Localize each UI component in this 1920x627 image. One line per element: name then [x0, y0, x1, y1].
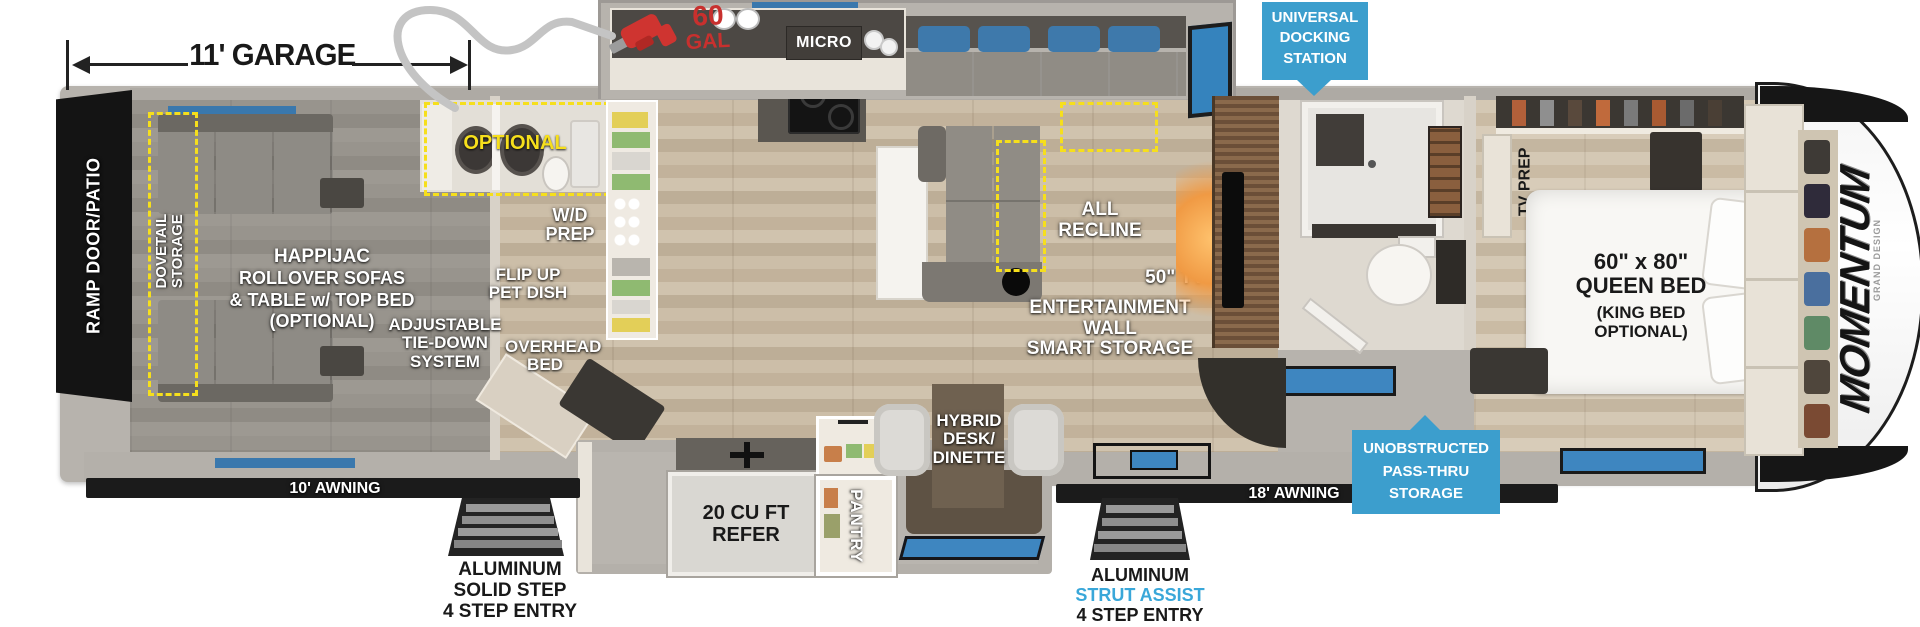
garage-bottom-window [215, 458, 355, 468]
steps-left-tread-2 [462, 516, 554, 524]
docking-badge-line1: UNIVERSAL [1262, 8, 1368, 28]
bath-bottom-window [1272, 366, 1396, 396]
steps-right-line2: STRUT ASSIST [1072, 586, 1208, 606]
passthru-badge-line3: STORAGE [1352, 483, 1500, 506]
shelf-item-6 [612, 280, 650, 296]
steps-right-line3: 4 STEP ENTRY [1072, 606, 1208, 626]
island-burner-cross-v [744, 442, 750, 468]
bath-cabinet [1436, 240, 1466, 304]
shelf-item-8 [612, 318, 650, 332]
clothes-item-5 [1804, 316, 1830, 350]
happijac-line3: & TABLE w/ TOP BED [222, 290, 422, 311]
hybrid-line3: DINETTE [926, 449, 1012, 467]
tie-down-line1: ADJUSTABLE [385, 316, 505, 334]
clothes-item-1 [1804, 140, 1830, 174]
fuel-hose [360, 0, 690, 115]
clothes-item-3 [1804, 228, 1830, 262]
sofa-side-table [1002, 268, 1030, 296]
refer-label: 20 CU FT REFER [703, 502, 790, 546]
cooktop-burner-2 [828, 104, 854, 130]
dovetail-line1: DOVETAIL [154, 214, 170, 289]
brand-maker-text: GRAND DESIGN [1872, 219, 1882, 301]
steps-right-line1: ALUMINUM [1072, 566, 1208, 586]
optional-label: OPTIONAL [450, 132, 580, 155]
pantry-box-1 [846, 444, 862, 458]
refer-line2: REFER [703, 524, 790, 546]
sofa-pillow-1 [918, 26, 970, 52]
dim-line-left [88, 63, 188, 66]
clothes-item-4 [1804, 272, 1830, 306]
happijac-line1: HAPPIJAC [222, 246, 422, 268]
ramp-door-label-box: RAMP DOOR/PATIO [56, 96, 132, 396]
bedroom-closet [1496, 96, 1744, 130]
shelf-item-7 [612, 300, 650, 314]
closet-item-4 [1596, 100, 1610, 126]
bed-option-line1: (KING BED [1566, 304, 1716, 323]
sofa-pillow-4 [1108, 26, 1160, 52]
steps-left-line3: 4 STEP ENTRY [440, 602, 580, 623]
bed-size-line2: QUEEN BED [1556, 274, 1726, 298]
docking-badge-line2: DOCKING [1262, 28, 1368, 48]
kitchen-sink-bowl-2 [736, 8, 760, 30]
clothes-item-6 [1804, 360, 1830, 394]
garage-speaker-bottom [320, 346, 364, 376]
closet-item-1 [1512, 100, 1526, 126]
steps-left-tread-4 [454, 540, 562, 548]
pantry-item-1 [824, 488, 838, 508]
shelf-item-2 [612, 132, 650, 148]
bed-option-line2: OPTIONAL) [1566, 323, 1716, 342]
wd-prep-line1: W/D [538, 206, 602, 225]
dovetail-label-box: DOVETAIL STORAGE [146, 118, 194, 384]
pantry-pot [824, 446, 842, 462]
flip-up-line1: FLIP UP [486, 266, 570, 284]
all-recline-label: ALL RECLINE [1040, 200, 1160, 241]
clothes-item-2 [1804, 184, 1830, 218]
fireplace-glow [1176, 146, 1214, 332]
overhead-bed-line2: BED [505, 356, 585, 374]
entry-door-mat [1130, 450, 1178, 470]
shelf-item-4 [612, 174, 650, 190]
floorplan-canvas: MOMENTUM GRAND DESIGN RAMP DOOR/PATIO DO… [0, 0, 1920, 627]
brand-maker: GRAND DESIGN [1866, 200, 1888, 320]
passthru-storage-badge: UNOBSTRUCTED PASS-THRU STORAGE [1352, 430, 1500, 514]
nightstand [1650, 132, 1702, 192]
dim-tick-left [66, 40, 69, 90]
wd-prep-line2: PREP [538, 225, 602, 244]
tie-down-label: ADJUSTABLE TIE-DOWN SYSTEM [385, 316, 505, 371]
sofa-arm [918, 126, 946, 182]
pantry-item-2 [824, 514, 840, 538]
shelf-item-5 [612, 258, 650, 276]
passthru-badge-line1: UNOBSTRUCTED [1352, 438, 1500, 461]
overhead-bed-line1: OVERHEAD [505, 338, 585, 356]
refer-line1: 20 CU FT [703, 502, 790, 524]
overhead-bed-label: OVERHEAD BED [505, 338, 585, 375]
dovetail-label: DOVETAIL STORAGE [154, 214, 186, 289]
garage-dim-label: 11' GARAGE [189, 38, 351, 72]
microwave: MICRO [786, 26, 862, 60]
steps-right-tread-2 [1102, 518, 1178, 526]
toilet-bowl [1366, 244, 1432, 306]
passthru-badge-line2: PASS-THRU [1352, 461, 1500, 484]
wall-tv [1222, 172, 1244, 308]
bed-bench [1470, 348, 1548, 394]
docking-badge-line3: STATION [1262, 49, 1368, 69]
dish-plate-2 [880, 38, 898, 56]
slide-floor-mat [899, 536, 1045, 560]
fuel-unit-label: GAL [684, 29, 731, 55]
desk-chair-right [1008, 404, 1064, 476]
recline-box-side [996, 140, 1046, 272]
hybrid-line1: HYBRID [926, 412, 1012, 430]
tie-down-line3: SYSTEM [385, 353, 505, 371]
closet-item-8 [1708, 100, 1722, 126]
dovetail-line2: STORAGE [170, 214, 186, 289]
closet-item-5 [1624, 100, 1638, 126]
steps-left-tread-1 [466, 504, 550, 512]
flip-up-line2: PET DISH [486, 284, 570, 302]
steps-right-tread-3 [1098, 531, 1182, 539]
sofa-pillow-3 [1048, 26, 1100, 52]
hybrid-desk-label: HYBRID DESK/ DINETTE [926, 412, 1012, 467]
bedroom-bottom-window [1560, 448, 1706, 474]
closet-item-6 [1652, 100, 1666, 126]
closet-item-7 [1680, 100, 1694, 126]
sofa-seats-top [906, 52, 1186, 96]
refrigerator: 20 CU FT REFER [668, 472, 824, 576]
awning-left-label: 10' AWNING [270, 480, 400, 497]
wardrobe [1744, 104, 1804, 456]
bath-wall-right [1464, 96, 1476, 350]
steps-left-tread-3 [458, 528, 558, 536]
shower-drain [1368, 160, 1376, 168]
fuel-hose-path [398, 10, 612, 108]
clothes-item-7 [1804, 404, 1830, 438]
closet-item-3 [1568, 100, 1582, 126]
bath-bench [1428, 126, 1462, 218]
steps-right-tread-1 [1106, 505, 1174, 513]
passthru-badge-pointer [1409, 415, 1441, 431]
recline-box-top [1060, 102, 1158, 152]
docking-badge-pointer [1297, 80, 1331, 96]
bed-option-label: (KING BED OPTIONAL) [1566, 304, 1716, 341]
pantry-handle [838, 420, 868, 424]
wd-prep-label: W/D PREP [538, 206, 602, 245]
ent-wall-line2: SMART STORAGE [1012, 339, 1208, 360]
garage-speaker-top [320, 178, 364, 208]
bed-size-label: 60" x 80" QUEEN BED [1556, 250, 1726, 298]
awning-right-label: 18' AWNING [1238, 485, 1350, 502]
flip-up-label: FLIP UP PET DISH [486, 266, 570, 303]
steps-right-tread-4 [1094, 544, 1186, 552]
desk-chair-left [874, 404, 930, 476]
shelf-item-3 [612, 152, 650, 170]
microwave-label: MICRO [796, 34, 852, 52]
steps-left-line2: SOLID STEP [440, 581, 580, 602]
docking-station-badge: UNIVERSAL DOCKING STATION [1262, 2, 1368, 80]
shelf-plates [610, 196, 650, 254]
steps-left-label: ALUMINUM SOLID STEP 4 STEP ENTRY [440, 560, 580, 623]
shower-seat [1316, 114, 1364, 166]
bottom-slide-left-wall [578, 442, 592, 572]
fuel-nozzle-icon [605, 8, 678, 70]
ramp-door-label: RAMP DOOR/PATIO [84, 158, 103, 335]
steps-left-line1: ALUMINUM [440, 560, 580, 581]
bed-size-line1: 60" x 80" [1556, 250, 1726, 274]
hybrid-line2: DESK/ [926, 430, 1012, 448]
happijac-line2: ROLLOVER SOFAS [222, 268, 422, 289]
slide-window-sliver [752, 2, 858, 8]
tie-down-line2: TIE-DOWN [385, 334, 505, 352]
steps-right-label: ALUMINUM STRUT ASSIST 4 STEP ENTRY [1072, 566, 1208, 625]
sofa-pillow-2 [978, 26, 1030, 52]
closet-item-2 [1540, 100, 1554, 126]
pantry-label: PANTRY [847, 489, 865, 563]
